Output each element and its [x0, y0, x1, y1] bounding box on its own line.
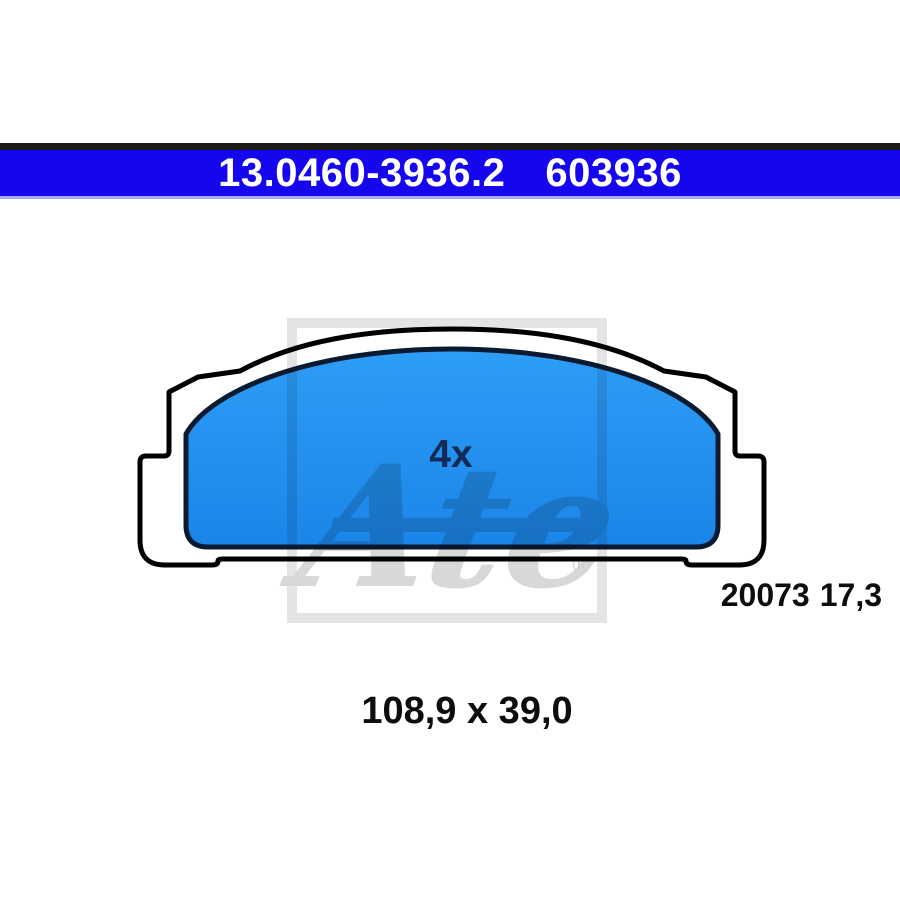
- quantity-label: 4x: [429, 433, 473, 476]
- wva-number: 20073: [721, 577, 810, 613]
- brake-pad-diagram: 4x: [130, 318, 780, 578]
- header-black-strip: [0, 143, 900, 150]
- header-bar: 13.0460-3936.2 603936: [0, 150, 900, 199]
- thickness-value: 17,3: [820, 577, 882, 613]
- product-image: 13.0460-3936.2 603936 4x Ate ® 2007317,3…: [0, 0, 900, 900]
- part-number: 13.0460-3936.2: [218, 151, 505, 196]
- wva-thickness-label: 2007317,3: [721, 577, 882, 614]
- article-code: 603936: [545, 151, 681, 196]
- dimensions-label: 108,9 x 39,0: [34, 690, 900, 733]
